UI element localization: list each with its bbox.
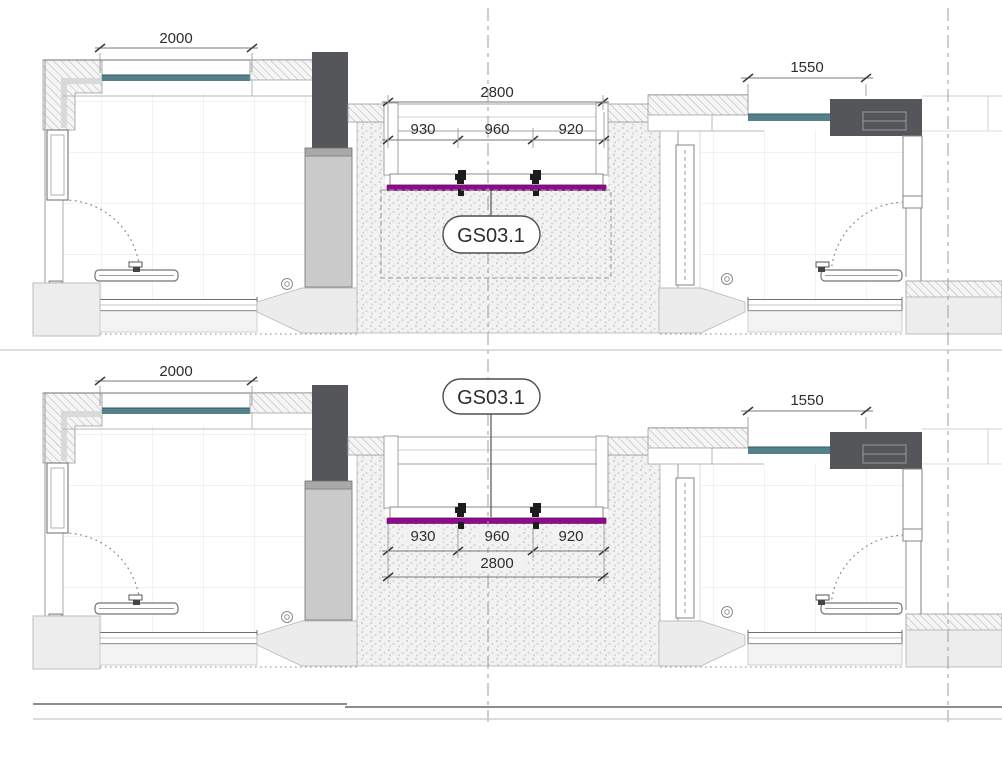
wall-step <box>252 80 315 96</box>
sill-slab-right <box>906 297 1002 334</box>
plan-drawing: 2000 2800 930 960 920 1550 <box>0 0 1002 757</box>
floor-outlet-icon <box>282 279 293 290</box>
dimension-2000-top: 2000 <box>95 30 258 73</box>
soffit-hatch-left <box>348 104 388 122</box>
dim-text: 2000 <box>159 363 192 380</box>
wall-hatch-right <box>250 60 315 80</box>
dimension-2000-bottom: 2000 <box>95 363 258 406</box>
dim-text: 930 <box>410 528 435 545</box>
callout-label: GS03.1 <box>457 387 525 409</box>
window-glazing <box>102 75 250 81</box>
plan-scene <box>33 52 1002 336</box>
partition-track <box>390 174 603 185</box>
dim-text: 930 <box>410 121 435 138</box>
structural-column <box>305 52 352 287</box>
plan-sheet: 2000 2800 930 960 920 1550 <box>0 0 1002 757</box>
dim-text: 2800 <box>480 555 513 572</box>
sill-slab-threshold <box>748 311 902 332</box>
room-right <box>648 95 1002 334</box>
door-jamb <box>903 196 922 208</box>
wall-hatch-top <box>648 95 748 115</box>
window-glazing <box>748 114 830 121</box>
column-band <box>305 148 352 156</box>
floor-grid <box>63 93 308 300</box>
callout-label: GS03.1 <box>457 225 525 247</box>
side-window-frame <box>903 136 922 198</box>
wall-step <box>648 115 712 131</box>
wardrobe-unit <box>830 99 922 136</box>
sill-hatch-right <box>906 281 1002 297</box>
dim-text: 960 <box>484 121 509 138</box>
plan-scene-bottom <box>33 385 1002 669</box>
dim-text: 2000 <box>159 30 192 47</box>
dim-text: 1550 <box>790 392 823 409</box>
dim-text: 2800 <box>480 84 513 101</box>
column-shaft <box>305 156 352 287</box>
jamb-left <box>384 103 398 175</box>
side-window-frame <box>47 130 68 200</box>
floor-outlet-icon <box>722 274 733 285</box>
dim-text: 960 <box>484 528 509 545</box>
sill-slab-threshold <box>100 311 257 332</box>
dim-text: 920 <box>558 121 583 138</box>
column-dark-cap <box>312 52 348 148</box>
sill-slab-left <box>33 283 100 336</box>
dim-text: 1550 <box>790 59 823 76</box>
dim-text: 920 <box>558 528 583 545</box>
